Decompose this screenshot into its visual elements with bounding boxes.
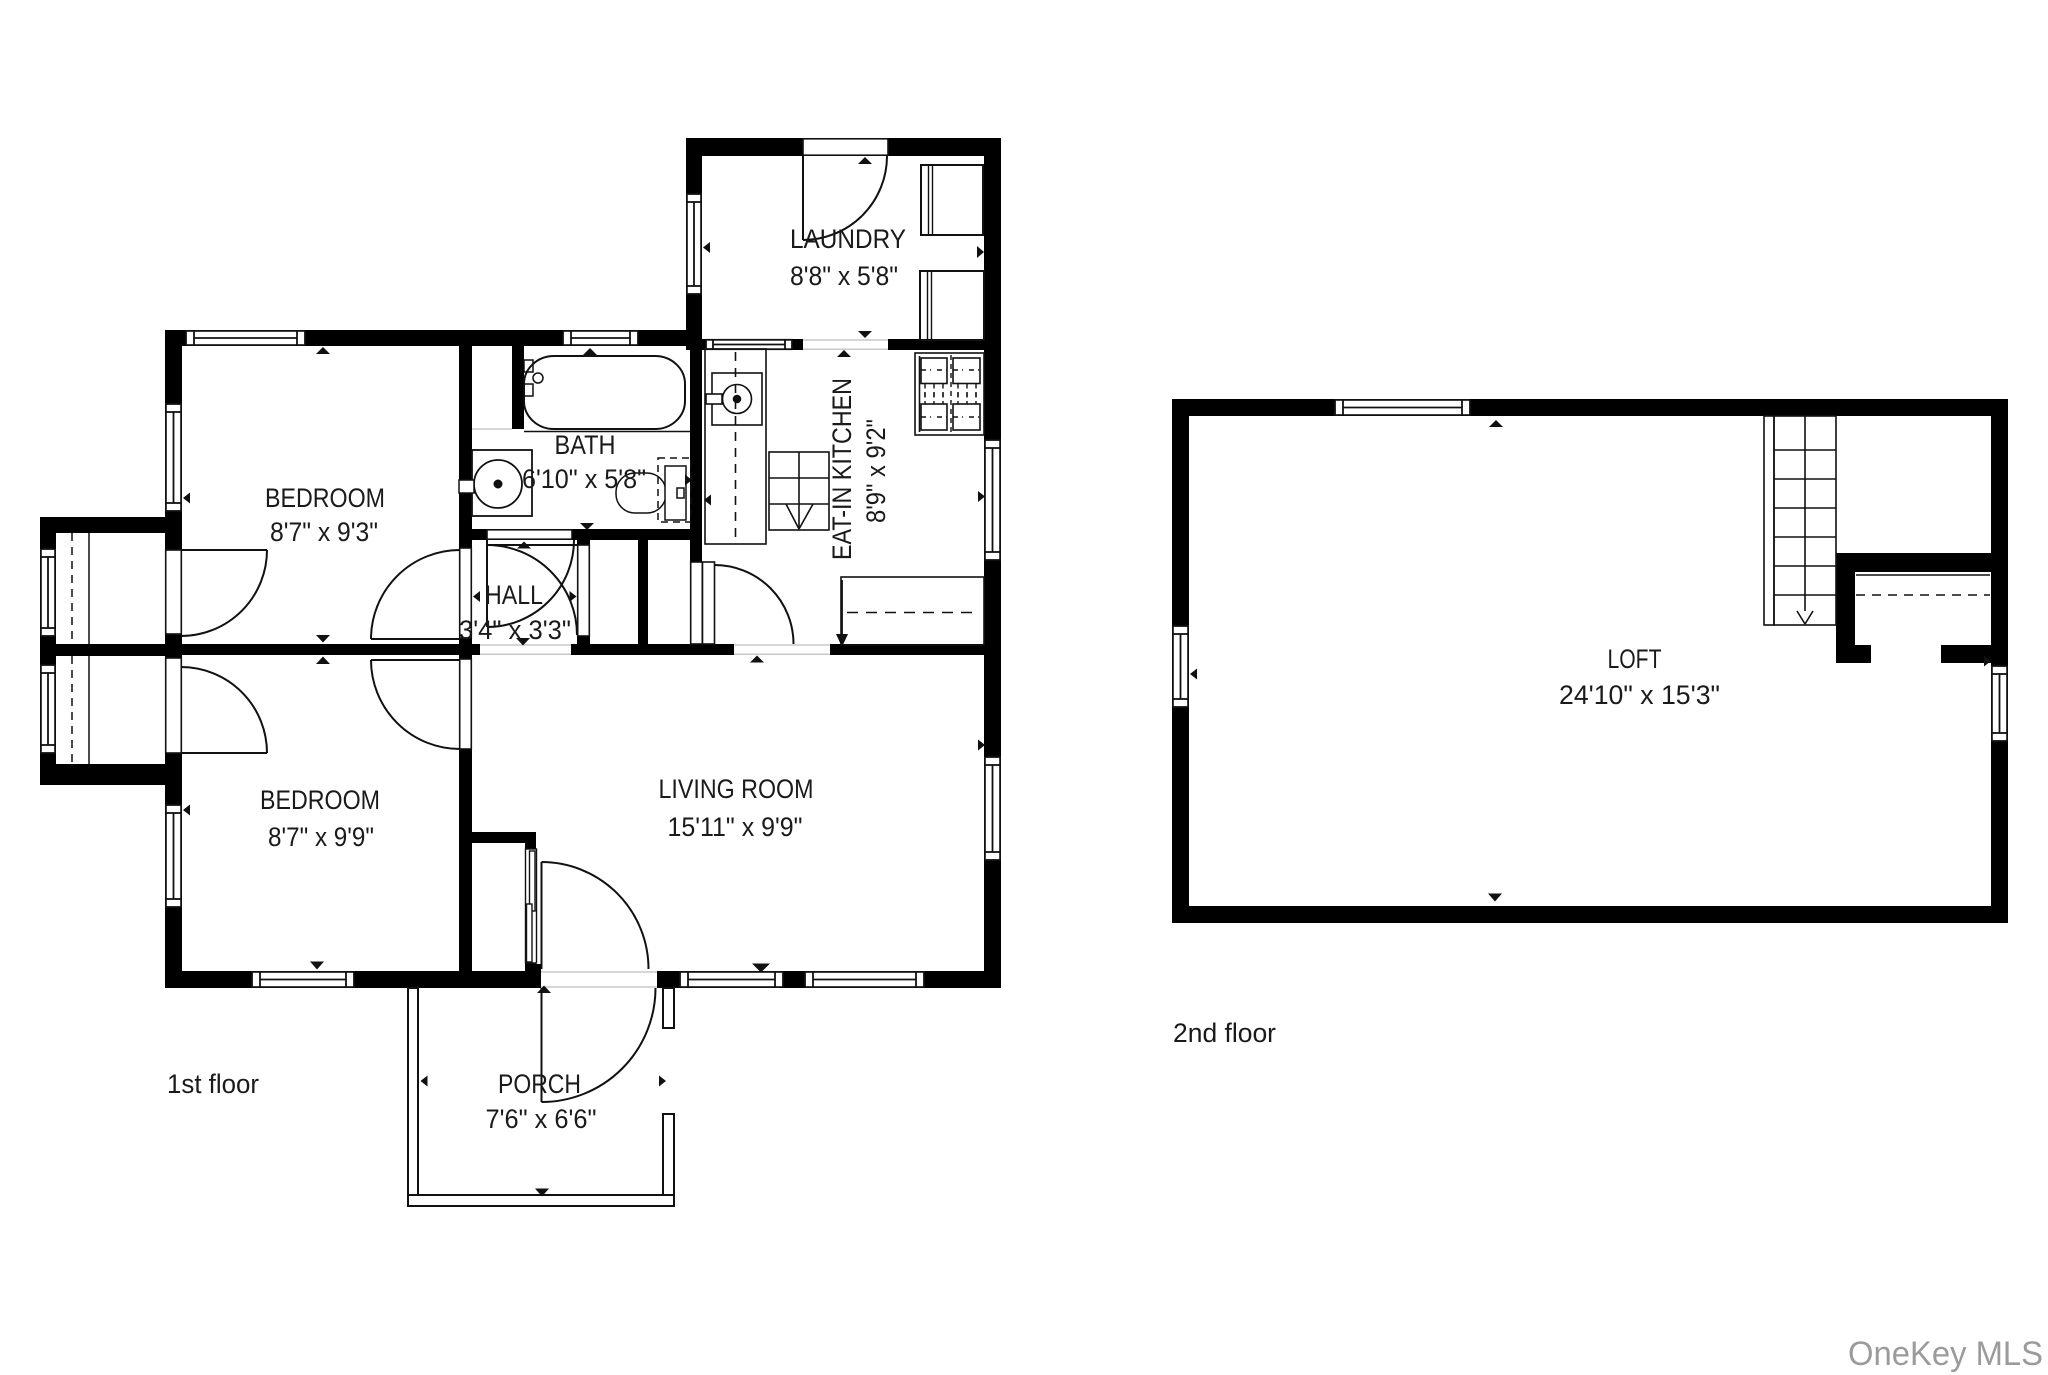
svg-text:8'7" x 9'9": 8'7" x 9'9" (268, 822, 374, 852)
svg-text:LOFT: LOFT (1608, 644, 1662, 674)
svg-text:LAUNDRY: LAUNDRY (790, 224, 906, 254)
svg-text:LIVING ROOM: LIVING ROOM (659, 774, 814, 804)
svg-text:PORCH: PORCH (498, 1069, 581, 1099)
svg-text:BATH: BATH (555, 430, 616, 460)
svg-text:BEDROOM: BEDROOM (265, 483, 385, 513)
svg-text:24'10" x 15'3": 24'10" x 15'3" (1559, 680, 1720, 710)
svg-text:OneKey MLS: OneKey MLS (1848, 1335, 2043, 1373)
svg-text:8'8" x 5'8": 8'8" x 5'8" (790, 261, 898, 291)
svg-text:15'11" x 9'9": 15'11" x 9'9" (668, 812, 803, 842)
svg-text:2nd floor: 2nd floor (1173, 1018, 1276, 1048)
svg-text:8'7" x 9'3": 8'7" x 9'3" (270, 517, 378, 547)
svg-text:HALL: HALL (485, 580, 543, 610)
svg-text:1st floor: 1st floor (167, 1069, 259, 1099)
svg-text:6'10" x 5'8": 6'10" x 5'8" (522, 464, 646, 494)
svg-text:EAT-IN KITCHEN: EAT-IN KITCHEN (827, 378, 857, 560)
svg-text:BEDROOM: BEDROOM (260, 785, 380, 815)
svg-text:8'9" x 9'2": 8'9" x 9'2" (861, 419, 891, 523)
svg-text:7'6" x 6'6": 7'6" x 6'6" (486, 1104, 597, 1134)
svg-text:3'4" x 3'3": 3'4" x 3'3" (459, 615, 571, 645)
